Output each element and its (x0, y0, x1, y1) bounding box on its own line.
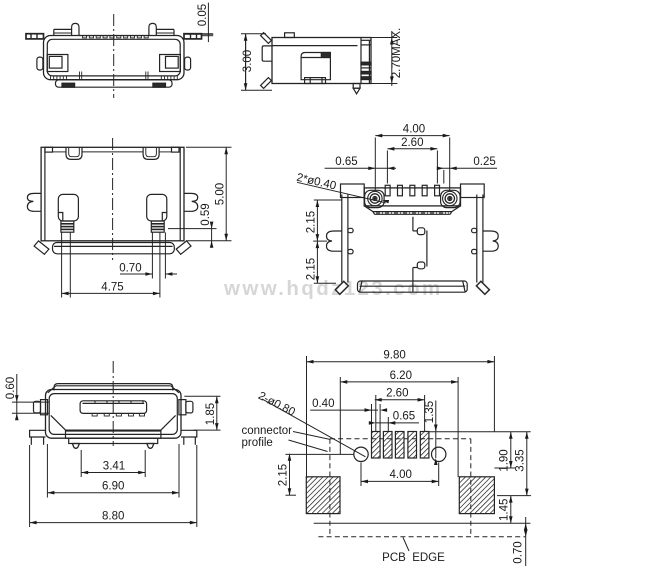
svg-text:1.45: 1.45 (498, 499, 510, 521)
svg-text:0.65: 0.65 (393, 411, 415, 423)
svg-text:0.65: 0.65 (335, 156, 357, 168)
svg-text:3.35: 3.35 (514, 449, 526, 471)
svg-text:3.00: 3.00 (242, 50, 254, 72)
svg-text:9.80: 9.80 (383, 350, 405, 362)
svg-text:profile: profile (242, 437, 273, 449)
svg-text:2.15: 2.15 (306, 211, 318, 233)
svg-text:0.70: 0.70 (119, 263, 141, 275)
svg-text:8.80: 8.80 (102, 511, 124, 523)
svg-text:2.60: 2.60 (386, 388, 408, 400)
svg-text:4.75: 4.75 (101, 282, 123, 294)
svg-text:2.60: 2.60 (401, 137, 423, 149)
svg-text:2.15: 2.15 (306, 258, 318, 280)
svg-text:0.59: 0.59 (200, 203, 212, 225)
svg-text:1.90: 1.90 (498, 449, 510, 471)
svg-text:0.40: 0.40 (312, 398, 334, 410)
svg-text:0.05: 0.05 (197, 4, 209, 26)
svg-text:1.35: 1.35 (424, 401, 436, 423)
svg-text:3.41: 3.41 (103, 461, 125, 473)
svg-text:0.60: 0.60 (5, 377, 17, 399)
svg-text:4.00: 4.00 (403, 124, 425, 136)
svg-text:6.90: 6.90 (102, 481, 124, 493)
svg-text:PCB EDGE: PCB EDGE (382, 552, 445, 564)
svg-text:0.25: 0.25 (473, 156, 495, 168)
svg-text:4.00: 4.00 (390, 469, 412, 481)
svg-text:0.70: 0.70 (513, 541, 525, 563)
svg-text:6.20: 6.20 (390, 370, 412, 382)
svg-text:2.15: 2.15 (278, 464, 290, 486)
svg-text:2.70MAX.: 2.70MAX. (391, 28, 403, 79)
svg-text:connector: connector (242, 425, 293, 437)
svg-text:5.00: 5.00 (214, 183, 226, 205)
svg-text:1.85: 1.85 (205, 403, 217, 425)
